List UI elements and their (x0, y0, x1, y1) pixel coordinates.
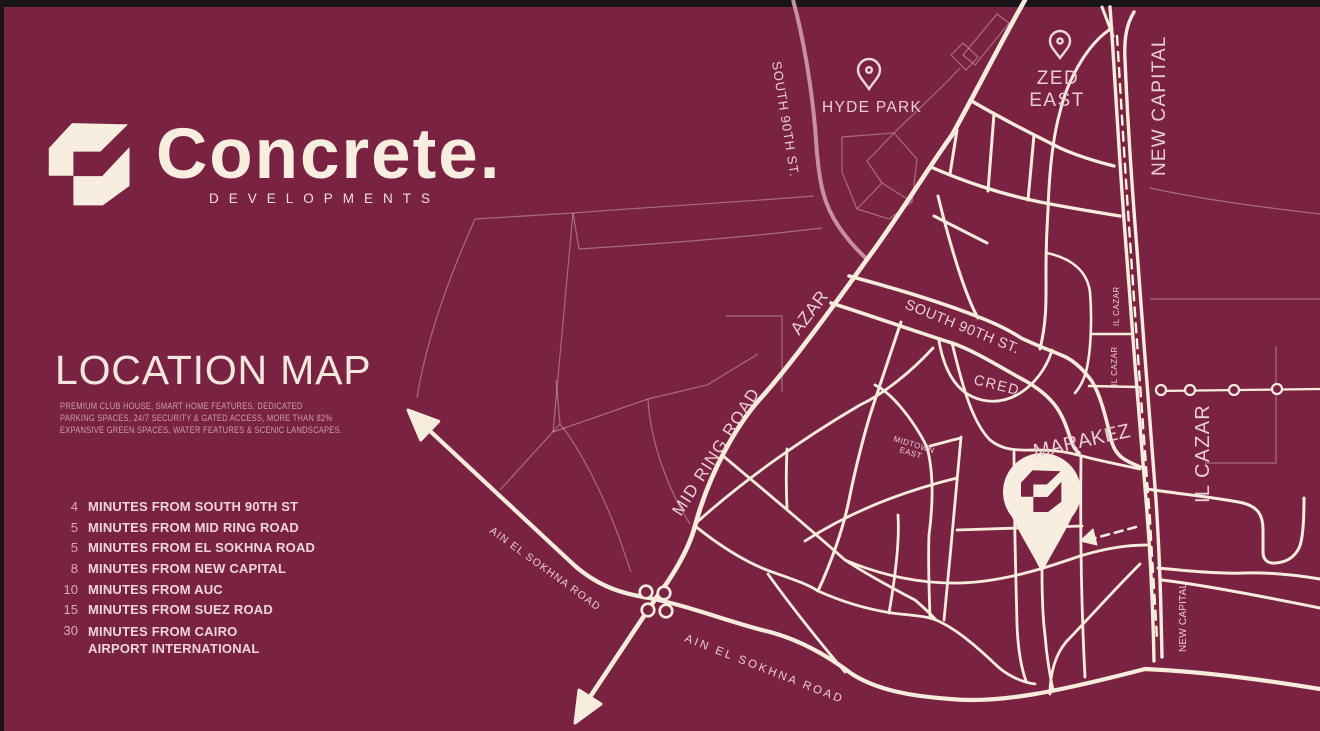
svg-text:HYDE PARK: HYDE PARK (822, 99, 922, 116)
svg-text:EAST: EAST (1029, 90, 1085, 111)
svg-text:SOUTH 90TH ST.: SOUTH 90TH ST. (769, 60, 802, 178)
svg-text:IL CAZAR: IL CAZAR (1192, 404, 1214, 503)
svg-text:AZAR: AZAR (786, 286, 832, 338)
svg-text:NEW CAPITAL: NEW CAPITAL (1178, 583, 1189, 652)
svg-text:NEW CAPITAL: NEW CAPITAL (1149, 35, 1170, 176)
svg-text:MID RING ROAD: MID RING ROAD (668, 384, 763, 519)
svg-text:IL CAZAR: IL CAZAR (1112, 286, 1121, 326)
svg-text:ZED: ZED (1037, 68, 1080, 89)
svg-text:IL CAZAR: IL CAZAR (1110, 346, 1119, 386)
